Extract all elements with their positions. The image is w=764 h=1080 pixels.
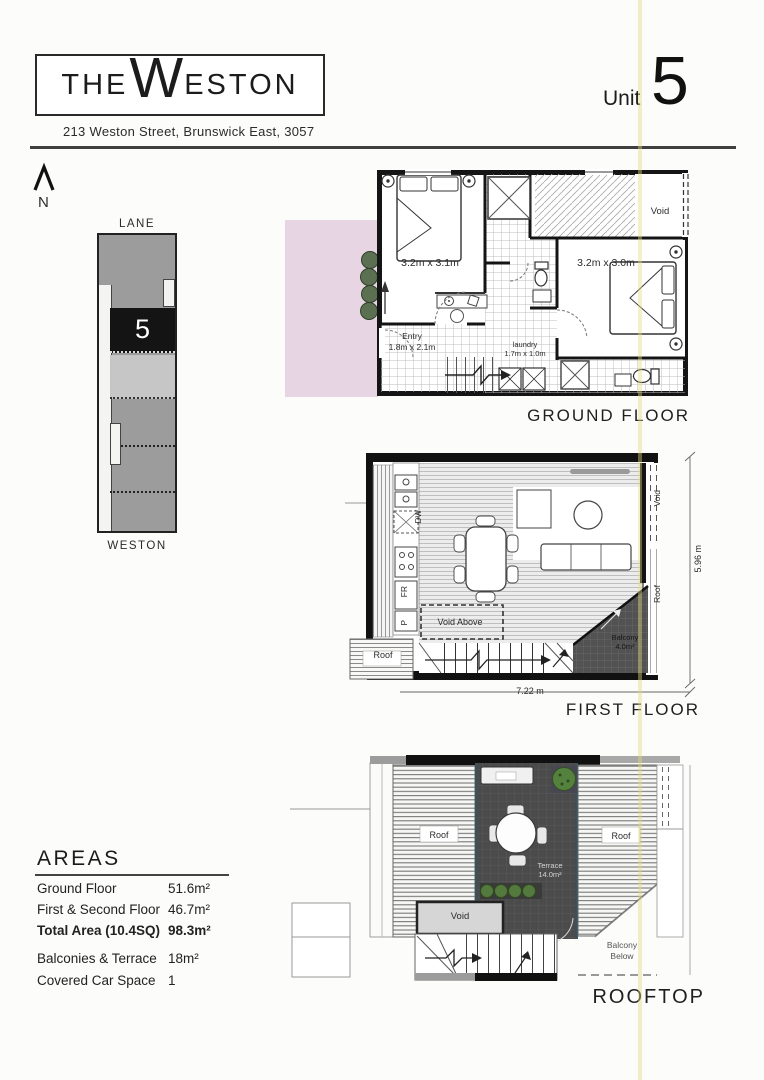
site-divider: [110, 491, 175, 493]
fridge-label: FR: [399, 586, 409, 597]
logo-text-w: W: [128, 54, 184, 102]
bed2-dimension: 3.2m x 3.0m: [556, 257, 656, 269]
side-table: [517, 490, 551, 528]
header-divider: [30, 146, 736, 149]
site-block-light: [110, 355, 175, 399]
void-above-label: Void Above: [410, 617, 510, 627]
balcony-label: Balcony 4.0m²: [595, 633, 655, 651]
ground-floor-plan: [285, 168, 690, 400]
areas-row: Ground Floor51.6m²: [37, 881, 257, 896]
site-unit-5-block: 5: [110, 308, 175, 353]
rooftop-plan: [290, 753, 705, 1003]
dishwasher-label: DW: [414, 510, 423, 523]
roof-right: [578, 765, 657, 936]
sofa-icon: [541, 544, 631, 570]
neighbour-structure: [292, 937, 350, 977]
entry-label: Entry 1.8m x 2.1m: [372, 331, 452, 353]
unit-number: 5: [651, 42, 689, 120]
rooftop-void-label: Void: [430, 911, 490, 922]
areas-title: AREAS: [37, 847, 121, 871]
unit-label: Unit: [603, 87, 640, 111]
rooftop-roof-right-label: Roof: [591, 831, 651, 841]
roof-side-label: Roof: [652, 585, 662, 603]
site-street-lane: LANE: [97, 218, 177, 230]
areas-underline: [35, 874, 229, 876]
areas-row-total: Total Area (10.4SQ)98.3m²: [37, 923, 257, 938]
toilet-icon: [634, 369, 660, 384]
void-side-label: Void: [652, 490, 662, 507]
scanned-floorplan-page: { "header": { "logo": { "the": "THE", "w…: [0, 0, 764, 1080]
tree-icon: [553, 768, 576, 791]
site-unit-number: 5: [135, 314, 150, 345]
logo-text-eston: ESTON: [184, 69, 298, 102]
areas-row: Balconies & Terrace18m²: [37, 951, 257, 966]
north-arrow-icon: [30, 164, 60, 194]
stairs-under: [535, 174, 635, 238]
kitchen: [393, 463, 419, 635]
ground-floor-title: GROUND FLOOR: [490, 406, 690, 426]
north-label: N: [38, 194, 49, 211]
logo-box: THE W ESTON: [35, 54, 325, 116]
tv: [570, 469, 630, 474]
basin: [615, 374, 631, 386]
site-notch: [163, 279, 175, 307]
width-dimension: 7.22 m: [490, 686, 570, 696]
pantry-label: P: [399, 620, 409, 626]
terrace-label: Terrace 14.0m²: [520, 861, 580, 879]
address: 213 Weston Street, Brunswick East, 3057: [63, 124, 314, 139]
bed1-dimension: 3.2m x 3.1m: [380, 257, 480, 269]
site-step: [110, 423, 121, 465]
left-wall: [366, 453, 373, 643]
roof-lower-label: Roof: [353, 650, 413, 660]
party-wall-hatch: [373, 465, 393, 637]
toilet-icon: [535, 262, 548, 286]
stairs: [419, 643, 573, 673]
balcony-below-label: Balcony Below: [591, 940, 653, 962]
site-street-weston: WESTON: [97, 540, 177, 552]
height-dimension: 5.96 m: [693, 545, 703, 573]
logo-text-the: THE: [61, 69, 128, 102]
rooftop-title: ROOFTOP: [505, 986, 705, 1009]
coffee-table: [574, 501, 602, 529]
areas-row: First & Second Floor46.7m²: [37, 902, 257, 917]
void-label: Void: [630, 206, 690, 217]
first-floor-title: FIRST FLOOR: [500, 700, 700, 720]
rooftop-roof-left-label: Roof: [409, 830, 469, 840]
site-plan: 5: [97, 233, 177, 533]
neighbour-structure: [292, 903, 350, 937]
top-wall: [367, 453, 657, 462]
areas-row: Covered Car Space1: [37, 973, 257, 988]
basin: [533, 290, 551, 302]
laundry-label: laundry 1.7m x 1.0m: [485, 340, 565, 358]
bottom-wall: [475, 973, 557, 981]
